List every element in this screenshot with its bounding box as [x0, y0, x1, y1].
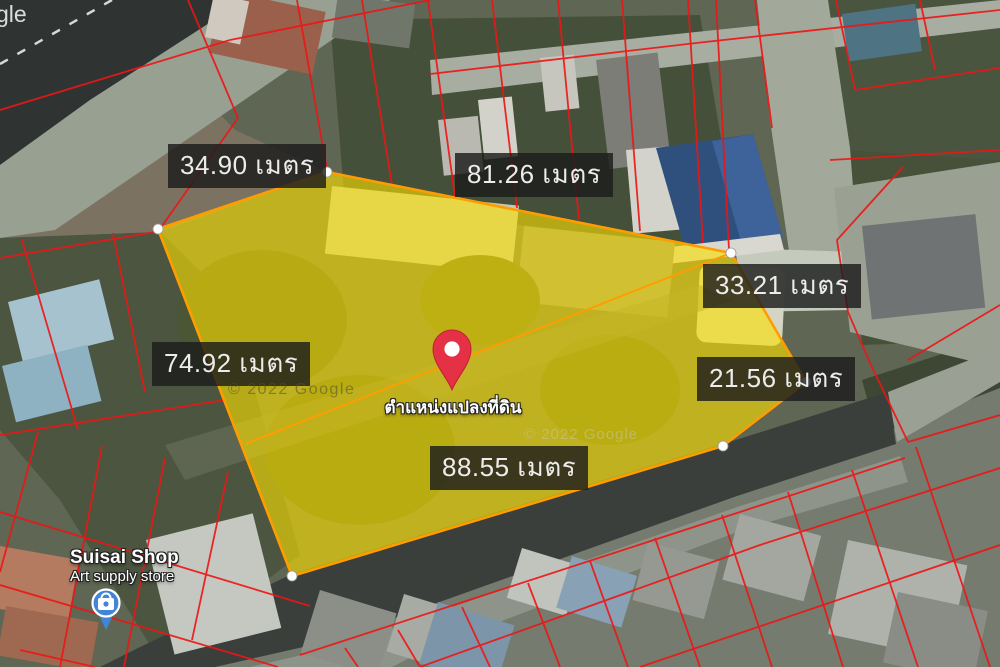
parcel-vertex-dot[interactable] — [287, 571, 297, 581]
poi-type: Art supply store — [70, 568, 174, 585]
google-watermark: © 2022 Google — [524, 426, 638, 443]
measurement-label-north: 81.26 เมตร — [455, 153, 613, 197]
measurement-label-south: 88.55 เมตร — [430, 446, 588, 490]
poi-name[interactable]: Suisai Shop — [70, 547, 179, 569]
measurement-label-east: 21.56 เมตร — [697, 357, 855, 401]
google-watermark: © 2022 Google — [228, 381, 355, 399]
parcel-vertex-dot[interactable] — [718, 441, 728, 451]
parcel-vertex-dot[interactable] — [153, 224, 163, 234]
google-logo-partial: gle — [0, 1, 27, 28]
measurement-label-northeast: 33.21 เมตร — [703, 264, 861, 308]
location-pin-caption: ตำแหน่งแปลงที่ดิน — [362, 394, 544, 421]
measurement-label-west: 74.92 เมตร — [152, 342, 310, 386]
satellite-map-canvas[interactable]: gle 34.90 เมตร 81.26 เมตร 33.21 เมตร 74.… — [0, 0, 1000, 667]
parcel-vertex-dot[interactable] — [726, 248, 736, 258]
measurement-label-northwest: 34.90 เมตร — [168, 144, 326, 188]
